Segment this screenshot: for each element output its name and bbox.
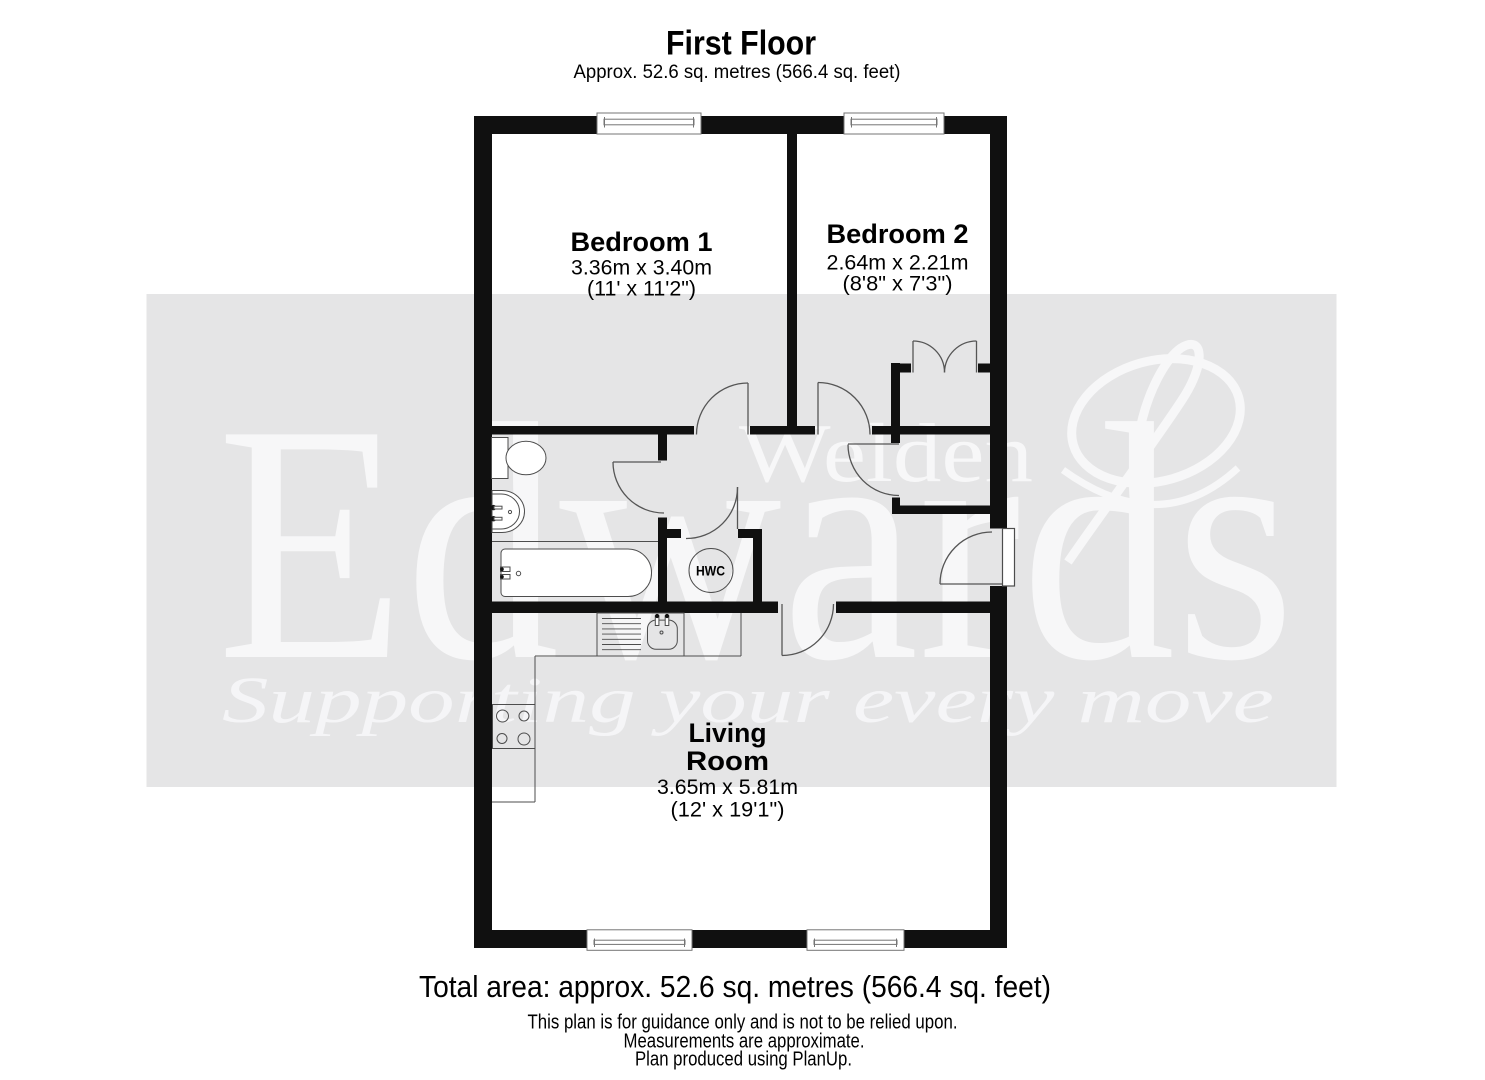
svg-text:(12' x 19'1"): (12' x 19'1")	[671, 798, 785, 822]
svg-text:Room: Room	[686, 746, 769, 776]
svg-text:Living: Living	[689, 718, 767, 748]
svg-text:Approx. 52.6 sq. metres (566.4: Approx. 52.6 sq. metres (566.4 sq. feet)	[574, 62, 901, 83]
svg-text:First Floor: First Floor	[666, 25, 816, 63]
svg-text:3.65m x 5.81m: 3.65m x 5.81m	[657, 775, 798, 799]
svg-text:Plan produced using PlanUp.: Plan produced using PlanUp.	[635, 1049, 852, 1071]
svg-text:(8'8" x 7'3"): (8'8" x 7'3")	[843, 272, 953, 296]
svg-text:(11' x 11'2"): (11' x 11'2")	[587, 277, 696, 301]
svg-text:HWC: HWC	[696, 563, 725, 579]
svg-text:Bedroom 2: Bedroom 2	[827, 219, 969, 249]
svg-text:Bedroom 1: Bedroom 1	[571, 227, 713, 257]
svg-text:Total area: approx. 52.6 sq. m: Total area: approx. 52.6 sq. metres (566…	[419, 970, 1051, 1004]
